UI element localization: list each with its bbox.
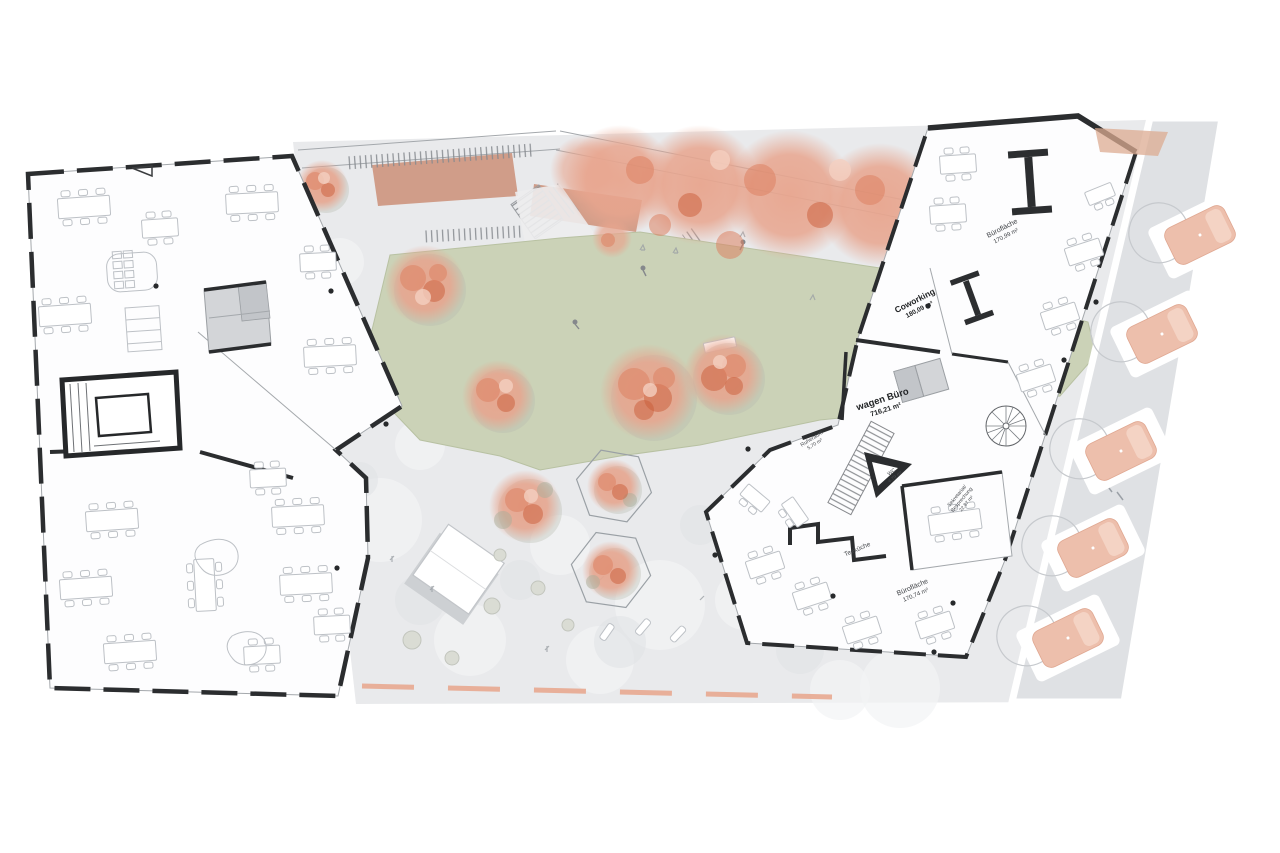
stair-core (62, 372, 180, 456)
wc-core (204, 282, 271, 352)
planting-wedge (1095, 128, 1168, 156)
site-plan-canvas: Coworking 180,09 m² Bürofläche 170,99 m²… (0, 0, 1280, 853)
site-plan-drawing: Coworking 180,09 m² Bürofläche 170,99 m²… (0, 0, 1280, 853)
spiral-stair (986, 406, 1026, 446)
tree (592, 218, 632, 258)
sekretariat-room (902, 472, 1012, 570)
